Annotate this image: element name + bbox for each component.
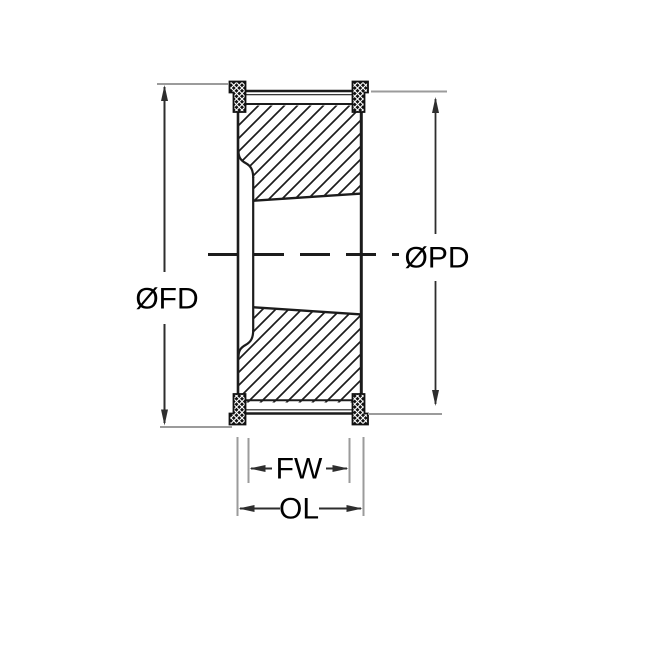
label-pitch-diameter: ØPD (404, 242, 469, 275)
section-hatch-top (239, 106, 361, 201)
label-overall-length: OL (279, 493, 319, 526)
section-hatch-bottom (239, 307, 361, 402)
pulley-drawing: ØFD ØPD FW OL (0, 0, 670, 670)
label-flange-diameter: ØFD (135, 283, 198, 316)
label-face-width: FW (276, 453, 323, 486)
drawing-canvas: ØFD ØPD FW OL (0, 0, 670, 670)
